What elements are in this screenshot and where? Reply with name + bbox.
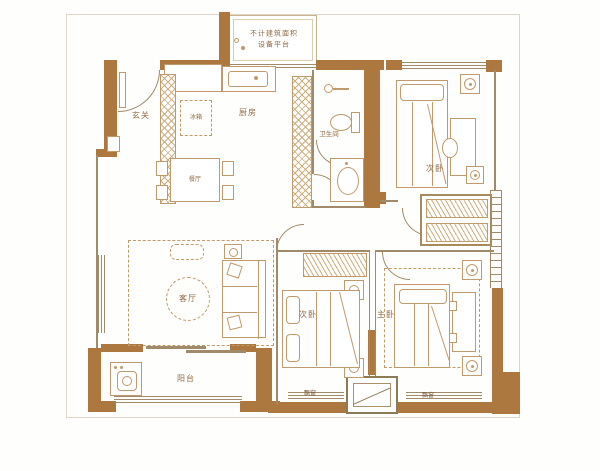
bathroom-label: 卫生间 [319,131,339,138]
bed-stripe [316,292,317,366]
bed-stripe [414,304,415,366]
fridge-label: 冰箱 [190,115,202,121]
toilet-tank [351,112,360,133]
dining-chair-icon [156,185,168,200]
window-master [406,392,482,399]
wall-bottom-master [396,402,494,413]
wall-tr-stub [386,60,402,70]
door-leaf-entry [119,72,126,108]
platform-label-line2: 设备平台 [258,42,290,49]
bed-stripe [330,292,331,366]
wall-right-lower [492,288,503,378]
wardrobe-mid-bedroom [303,253,367,277]
closet-rail-bottom [426,223,488,242]
bed-stripe [412,102,413,186]
bay-right-label: 飘窗 [422,393,434,399]
wash-basin [337,167,359,195]
wall-br-block [492,372,520,414]
tall-cabinet-right [292,76,312,208]
wall-corridor-stub [366,192,386,204]
wall-plumbing-shaft [364,60,380,208]
ac-unit-icon [462,356,482,376]
dining-chair-icon [222,185,234,200]
platform-vent-icon [234,38,239,43]
master-label: 主卧 [377,311,395,319]
bed-pillow [399,289,447,304]
sofa-cushion-line [223,312,257,313]
window-bedroom-tr [402,62,486,69]
ac-unit-icon [466,166,484,184]
sofa-back-line [258,261,259,339]
sliding-door-panel-2 [186,350,246,353]
sliding-door-panel-1 [146,346,206,349]
window-living-left [98,255,107,333]
dining-chair-icon [222,161,234,176]
bed-stripe [432,102,433,186]
sofa-cushion-line [223,286,257,287]
kitchen-label: 厨房 [239,109,257,117]
tv-console [170,244,204,260]
wall-bottom-mid [268,402,350,413]
wall-living-bedroom-divider [276,238,278,404]
bedroom-mid-label: 次卧 [299,311,317,319]
shower-head-icon [324,84,333,93]
wall-right-upper-line [494,70,496,190]
dresser-notch [449,301,457,311]
washer-drum [122,376,132,386]
living-label: 客厅 [179,295,197,303]
ac-unit-icon [462,260,482,280]
wall-balcony-bl [88,401,116,412]
bed-pillow [286,296,300,324]
side-table-plant-icon [229,248,238,257]
wall-bath-left-upper [312,70,314,174]
washing-machine-icon [110,362,142,396]
platform-label-line1: 不计建筑面积 [250,31,298,38]
closet-rail-top [426,199,488,218]
dining-chair-icon [156,161,168,176]
bed-pillow [286,334,300,362]
balcony-label: 阳台 [177,375,195,383]
bedroom-top-right-label: 次卧 [426,165,444,173]
sink-faucet-dot [254,76,258,80]
dresser-notch [449,333,457,343]
washer-knob [114,366,117,369]
dresser [452,292,476,352]
wall-tr-bottom-1 [380,200,398,202]
bed-stripe [428,304,429,366]
ac-unit-icon [460,74,480,94]
shower-arm [333,88,349,90]
window-balcony [114,396,242,403]
shoe-cabinet [107,136,120,152]
desk-chair [442,138,458,158]
toilet-bowl [330,114,352,131]
bed-pillow [400,84,444,101]
bed-icon-master [394,284,450,368]
wall-balcony-right [256,348,272,406]
sink-basin [228,71,268,87]
bay-left-label: 飘窗 [304,391,316,397]
entry-label: 玄关 [132,112,150,120]
dining-label: 餐厅 [189,177,201,183]
wall-bath-bottom [312,206,366,208]
kitchen-sink [222,66,276,92]
side-table [224,244,242,259]
platform-dot-icon [241,46,245,50]
basin-faucet-dot [345,162,348,165]
washer-knob [120,366,123,369]
floor-plan: 不计建筑面积 设备平台 [0,0,600,471]
